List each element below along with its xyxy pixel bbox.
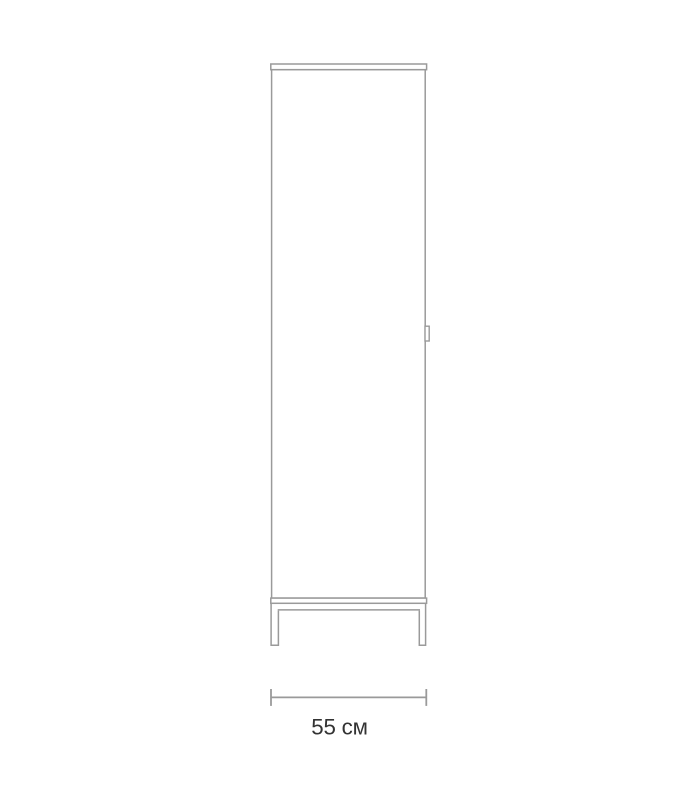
svg-text:55 см: 55 см xyxy=(311,715,367,740)
